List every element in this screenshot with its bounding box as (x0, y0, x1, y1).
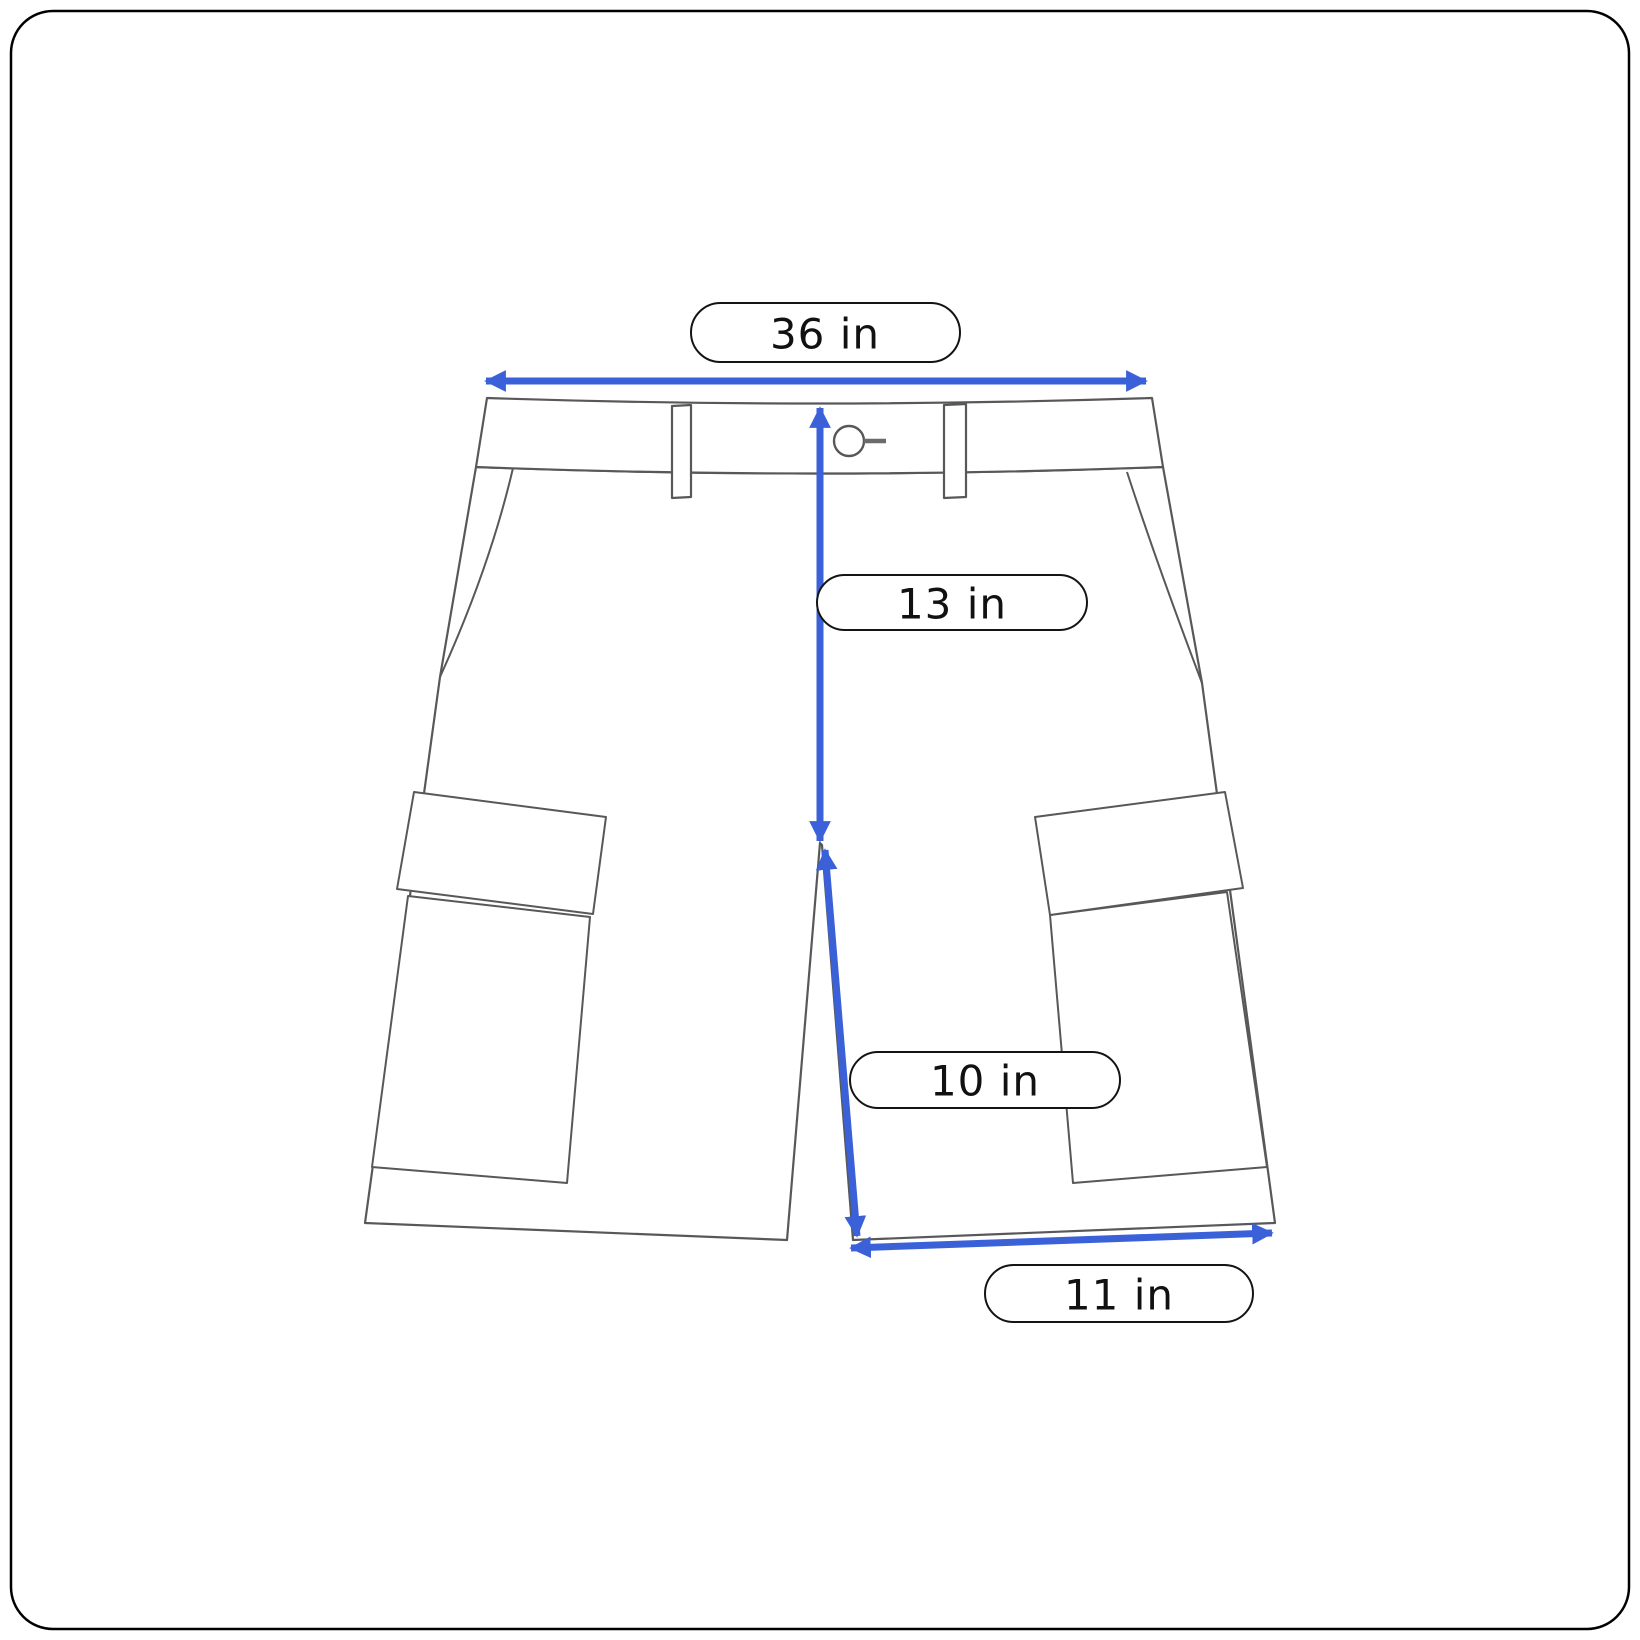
garment-measurement-diagram: 36 in 13 in 10 in 11 in (0, 0, 1640, 1640)
inseam-label-text: 10 in (930, 1057, 1040, 1106)
front-rise-measure-label: 13 in (817, 575, 1087, 630)
leg-opening-label-text: 11 in (1064, 1271, 1174, 1320)
inseam-measure-label: 10 in (850, 1052, 1120, 1108)
right-belt-loop (944, 404, 966, 498)
left-cargo-pocket-body (372, 896, 590, 1183)
fly-button (834, 426, 864, 456)
left-belt-loop (672, 405, 691, 498)
waist-label-text: 36 in (770, 310, 880, 359)
leg-opening-measure-label: 11 in (985, 1265, 1253, 1322)
shorts-diagram-canvas: 36 in 13 in 10 in 11 in (0, 0, 1640, 1640)
front-rise-label-text: 13 in (897, 580, 1007, 629)
waist-measure-label: 36 in (691, 303, 960, 362)
